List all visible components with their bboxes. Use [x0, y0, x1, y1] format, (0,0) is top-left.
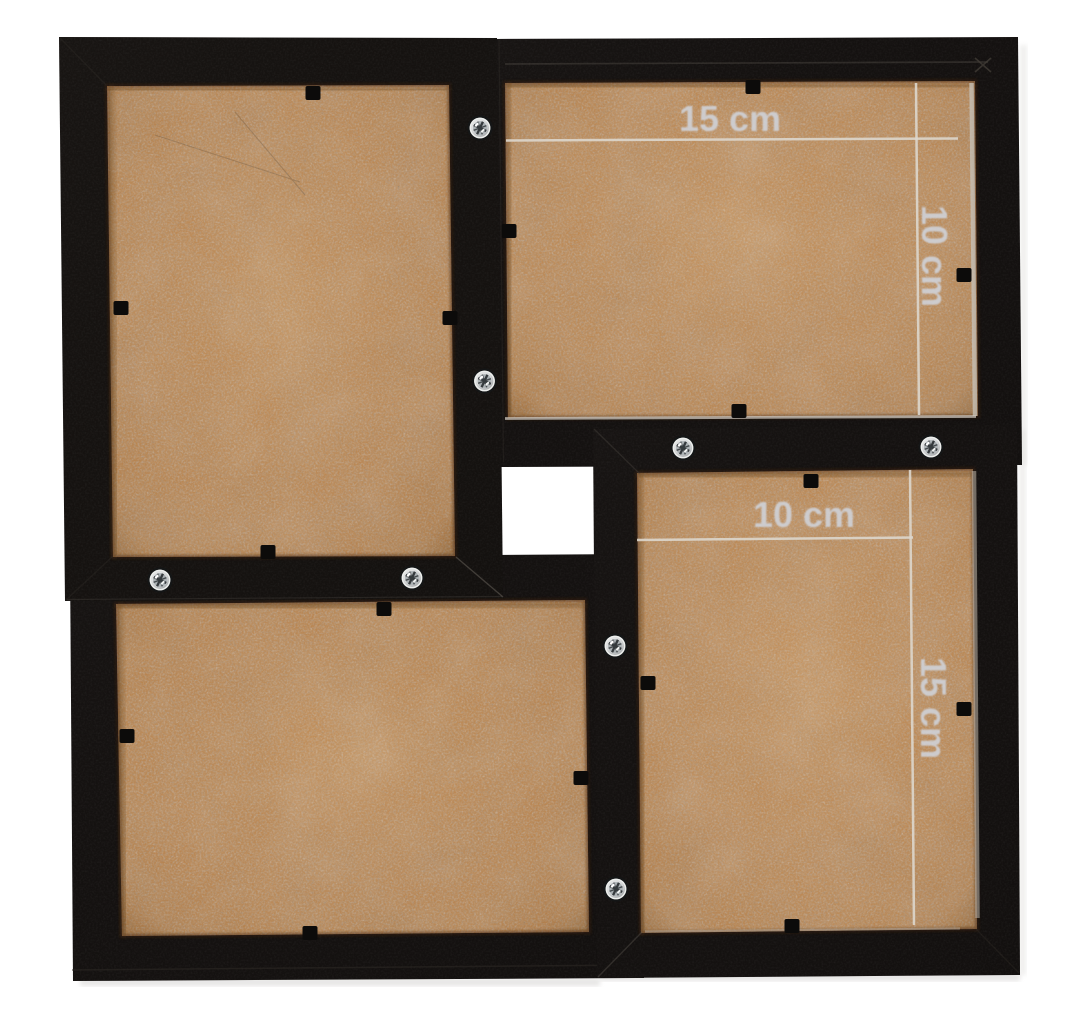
- svg-text:10 cm: 10 cm: [753, 494, 855, 535]
- svg-text:15 cm: 15 cm: [679, 98, 781, 139]
- svg-text:10 cm: 10 cm: [914, 205, 955, 307]
- svg-text:15 cm: 15 cm: [913, 657, 954, 759]
